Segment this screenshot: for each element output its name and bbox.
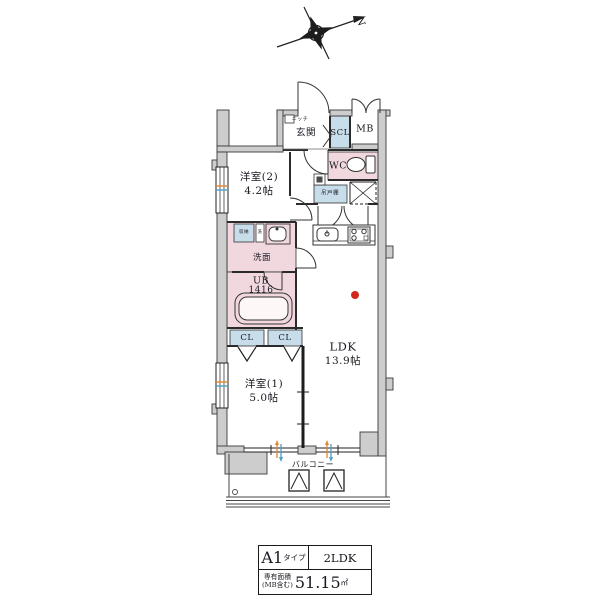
ldk-name-label: LDK — [330, 341, 357, 353]
bedroom2-door — [290, 198, 312, 220]
bathtub-icon — [235, 293, 292, 324]
closet-left-label: CL — [240, 334, 253, 343]
compass-icon: N — [277, 7, 367, 59]
balcony-label: バルコニー — [292, 461, 334, 469]
toilet-icon — [347, 156, 375, 173]
bedroom1-window — [216, 363, 228, 408]
drain-icon — [233, 490, 238, 495]
type-suffix: タイプ — [283, 552, 306, 563]
hatch-icon — [289, 470, 344, 491]
unit-bath-size-label: 1416 — [249, 287, 274, 296]
storage-label: 収納 — [239, 231, 249, 236]
shoe-closet-label: SCL — [330, 129, 349, 138]
closet-fold-marks — [238, 347, 300, 361]
niche-label: ニッチ — [292, 118, 309, 123]
ldk-size-label: 13.9帖 — [325, 356, 361, 367]
bedroom2-window — [216, 167, 228, 213]
info-table: A1 タイプ 2LDK 専有面積 (MB含む) 51.15 ㎡ — [258, 545, 372, 595]
laundry-label: 洗 — [258, 231, 263, 236]
sink-icon — [317, 228, 338, 241]
ldk-balcony-window — [316, 440, 360, 462]
layout-cell: 2LDK — [309, 546, 371, 569]
kitchen-counter — [313, 225, 375, 245]
area-value: 51.15 — [295, 573, 341, 592]
unit-bath-name-label: UB — [253, 276, 269, 286]
washbasin-icon — [266, 224, 290, 244]
bedroom1-size-label: 5.0帖 — [249, 393, 278, 404]
area-unit: ㎡ — [341, 577, 349, 588]
floor-plan-page: N — [0, 0, 600, 600]
bedroom2-size-label: 4.2帖 — [244, 186, 273, 197]
stove-icon — [348, 227, 370, 243]
compass-north-label: N — [353, 16, 366, 28]
toilet-label: WC — [329, 161, 347, 171]
toilet-door — [304, 150, 328, 174]
pipe-space — [350, 182, 376, 204]
info-table-row-type: A1 タイプ 2LDK — [259, 546, 371, 570]
appliance-box-icon — [314, 174, 325, 185]
meter-box-label: MB — [356, 124, 374, 134]
floor-plan-canvas: N — [0, 0, 600, 600]
bedroom1-name-label: 洋室(1) — [245, 379, 283, 390]
type-cell: A1 タイプ — [259, 546, 309, 569]
sliding-partition — [297, 346, 309, 448]
hanging-cupboard-label: 吊戸棚 — [321, 191, 339, 197]
area-note: (MB含む) — [262, 582, 293, 590]
type-value: A1 — [261, 548, 283, 567]
closet-right-label: CL — [278, 334, 291, 343]
entrance-label: 玄関 — [296, 128, 316, 138]
washroom-door — [296, 248, 316, 268]
area-label-cell: 専有面積 (MB含む) — [262, 574, 293, 590]
red-marker-dot — [351, 291, 359, 299]
bedroom2-name-label: 洋室(2) — [240, 172, 278, 183]
washroom-label: 洗面 — [253, 254, 271, 263]
entrance-door — [298, 82, 329, 113]
meter-box-doors — [352, 99, 380, 113]
info-table-row-area: 専有面積 (MB含む) 51.15 ㎡ — [259, 570, 371, 594]
